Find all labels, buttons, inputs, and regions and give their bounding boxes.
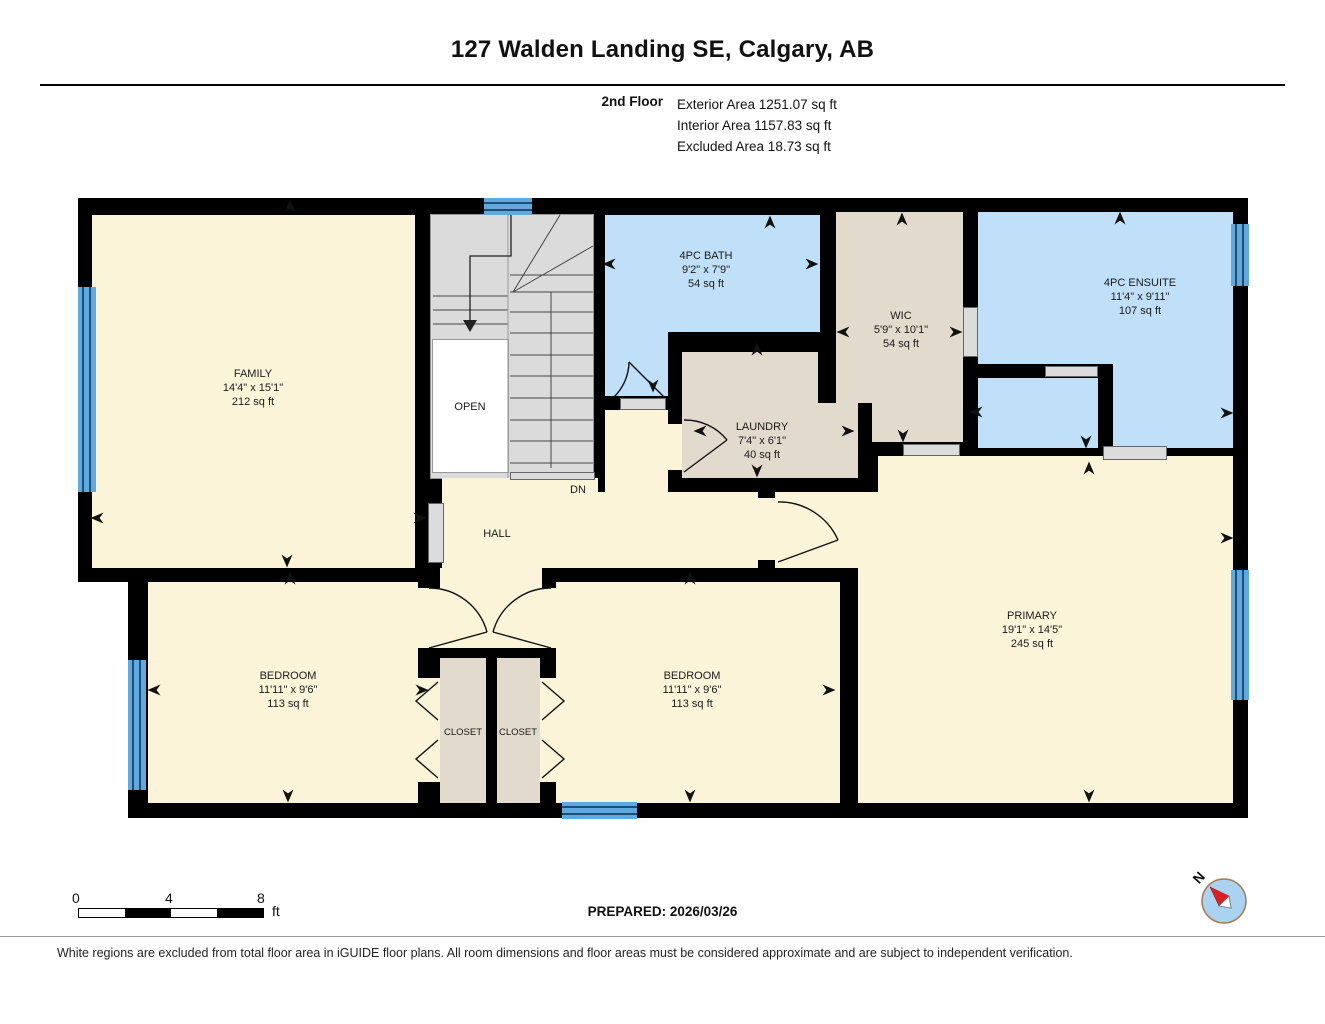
window-stairs-north: [484, 198, 532, 215]
laundry-door-gap: [668, 424, 682, 470]
label-closet-right: CLOSET: [499, 726, 537, 740]
window-bedroom-left-west: [128, 660, 146, 790]
hall-floor-east: [598, 492, 758, 568]
room-ensuite-floor-ext: [1113, 364, 1233, 448]
label-wic: WIC 5'9" x 10'1" 54 sq ft: [874, 309, 928, 351]
hall-bath-access: [605, 410, 668, 492]
exterior-area: Exterior Area 1251.07 sq ft: [677, 94, 837, 115]
bedroom-left-door-gap: [418, 588, 440, 648]
page-title: 127 Walden Landing SE, Calgary, AB: [0, 36, 1325, 64]
room-bath-floor-ext: [605, 332, 668, 396]
room-primary-floor-west: [858, 568, 878, 803]
ensuite-entry-opening: [1103, 446, 1167, 460]
room-wic-floor-ext: [872, 403, 963, 442]
floorplan-page: 127 Walden Landing SE, Calgary, AB 2nd F…: [0, 0, 1325, 1024]
label-laundry: LAUNDRY 7'4" x 6'1" 40 sq ft: [736, 420, 788, 462]
area-summary: Exterior Area 1251.07 sq ft Interior Are…: [677, 94, 837, 157]
bedroom-right-door-gap: [542, 588, 558, 648]
family-hall-opening: [428, 503, 444, 563]
closet-left-door-gap: [418, 678, 440, 782]
footer-divider: [0, 936, 1325, 937]
window-primary-east: [1231, 570, 1249, 700]
label-hall: HALL: [483, 527, 511, 541]
hall-corridor: [440, 568, 542, 648]
compass-north-label: N: [1189, 868, 1208, 886]
room-primary-alcove: [775, 492, 878, 568]
label-family: FAMILY 14'4" x 15'1" 212 sq ft: [223, 367, 283, 409]
window-ensuite-east: [1231, 224, 1249, 286]
ensuite-shower-floor: [978, 378, 1098, 448]
room-laundry-floor-ext: [818, 403, 858, 478]
window-bedroom-right-south: [562, 802, 637, 819]
label-primary: PRIMARY 19'1" x 14'5" 245 sq ft: [1002, 609, 1062, 651]
label-bath: 4PC BATH 9'2" x 7'9" 54 sq ft: [680, 249, 733, 291]
window-family-west: [78, 287, 96, 492]
label-ensuite: 4PC ENSUITE 11'4" x 9'11" 107 sq ft: [1104, 276, 1176, 318]
title-divider: [40, 84, 1285, 86]
wic-ensuite-opening: [963, 307, 978, 357]
label-bedroom-left: BEDROOM 11'11" x 9'6" 113 sq ft: [259, 669, 318, 711]
shower-partition: [1045, 366, 1098, 377]
bath-entry-opening: [620, 398, 666, 410]
footer-disclaimer: White regions are excluded from total fl…: [57, 946, 1073, 960]
floor-label: 2nd Floor: [400, 94, 663, 109]
room-wic-floor: [836, 212, 963, 403]
closet-right-door-gap: [540, 678, 558, 782]
label-open: OPEN: [454, 400, 485, 414]
plan-outside-notch: [78, 582, 128, 818]
stairs-threshold: [510, 472, 595, 480]
label-closet-left: CLOSET: [444, 726, 482, 740]
wic-entry-opening: [903, 444, 960, 456]
prepared-date: PREPARED: 2026/03/26: [0, 904, 1325, 919]
interior-area: Interior Area 1157.83 sq ft: [677, 115, 837, 136]
primary-door-gap: [758, 498, 775, 560]
label-bedroom-right: BEDROOM 11'11" x 9'6" 113 sq ft: [663, 669, 722, 711]
excluded-area: Excluded Area 18.73 sq ft: [677, 136, 837, 157]
label-dn: DN: [570, 483, 586, 497]
